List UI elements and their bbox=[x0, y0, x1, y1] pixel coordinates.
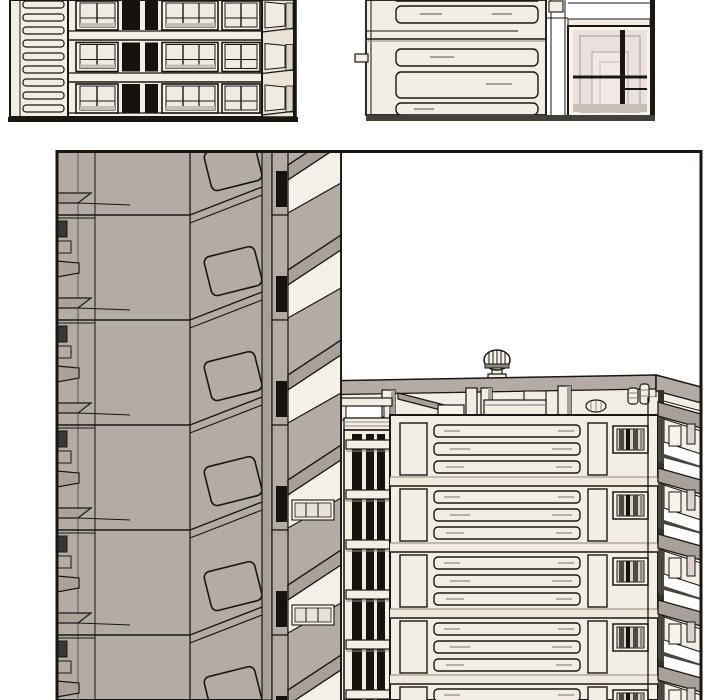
corner-pilaster bbox=[262, 152, 272, 700]
front-gray-building bbox=[57, 150, 341, 700]
base-strip bbox=[366, 115, 655, 121]
top-panel bbox=[0, 0, 720, 122]
railing-bands bbox=[396, 1, 538, 115]
corner-window bbox=[566, 0, 655, 118]
window-rows bbox=[76, 1, 260, 113]
wall-ledge bbox=[355, 54, 368, 62]
louver-slats bbox=[23, 1, 64, 112]
facade-divider bbox=[546, 0, 568, 115]
bottom-panel bbox=[0, 150, 720, 700]
ground-line bbox=[8, 117, 298, 122]
stairwell-window-column bbox=[338, 398, 392, 700]
webtoon-page bbox=[0, 0, 720, 700]
bottom-panel-art bbox=[0, 150, 720, 700]
top-right-building bbox=[355, 0, 655, 121]
top-panel-art bbox=[0, 0, 720, 122]
window-sill bbox=[573, 104, 647, 112]
mushroom-roof-vent bbox=[484, 350, 510, 378]
rear-cream-building bbox=[318, 350, 701, 700]
top-left-building bbox=[8, 0, 298, 122]
pipe-vent bbox=[628, 388, 638, 404]
side-balconies bbox=[658, 402, 701, 700]
side-floors bbox=[262, 2, 296, 115]
